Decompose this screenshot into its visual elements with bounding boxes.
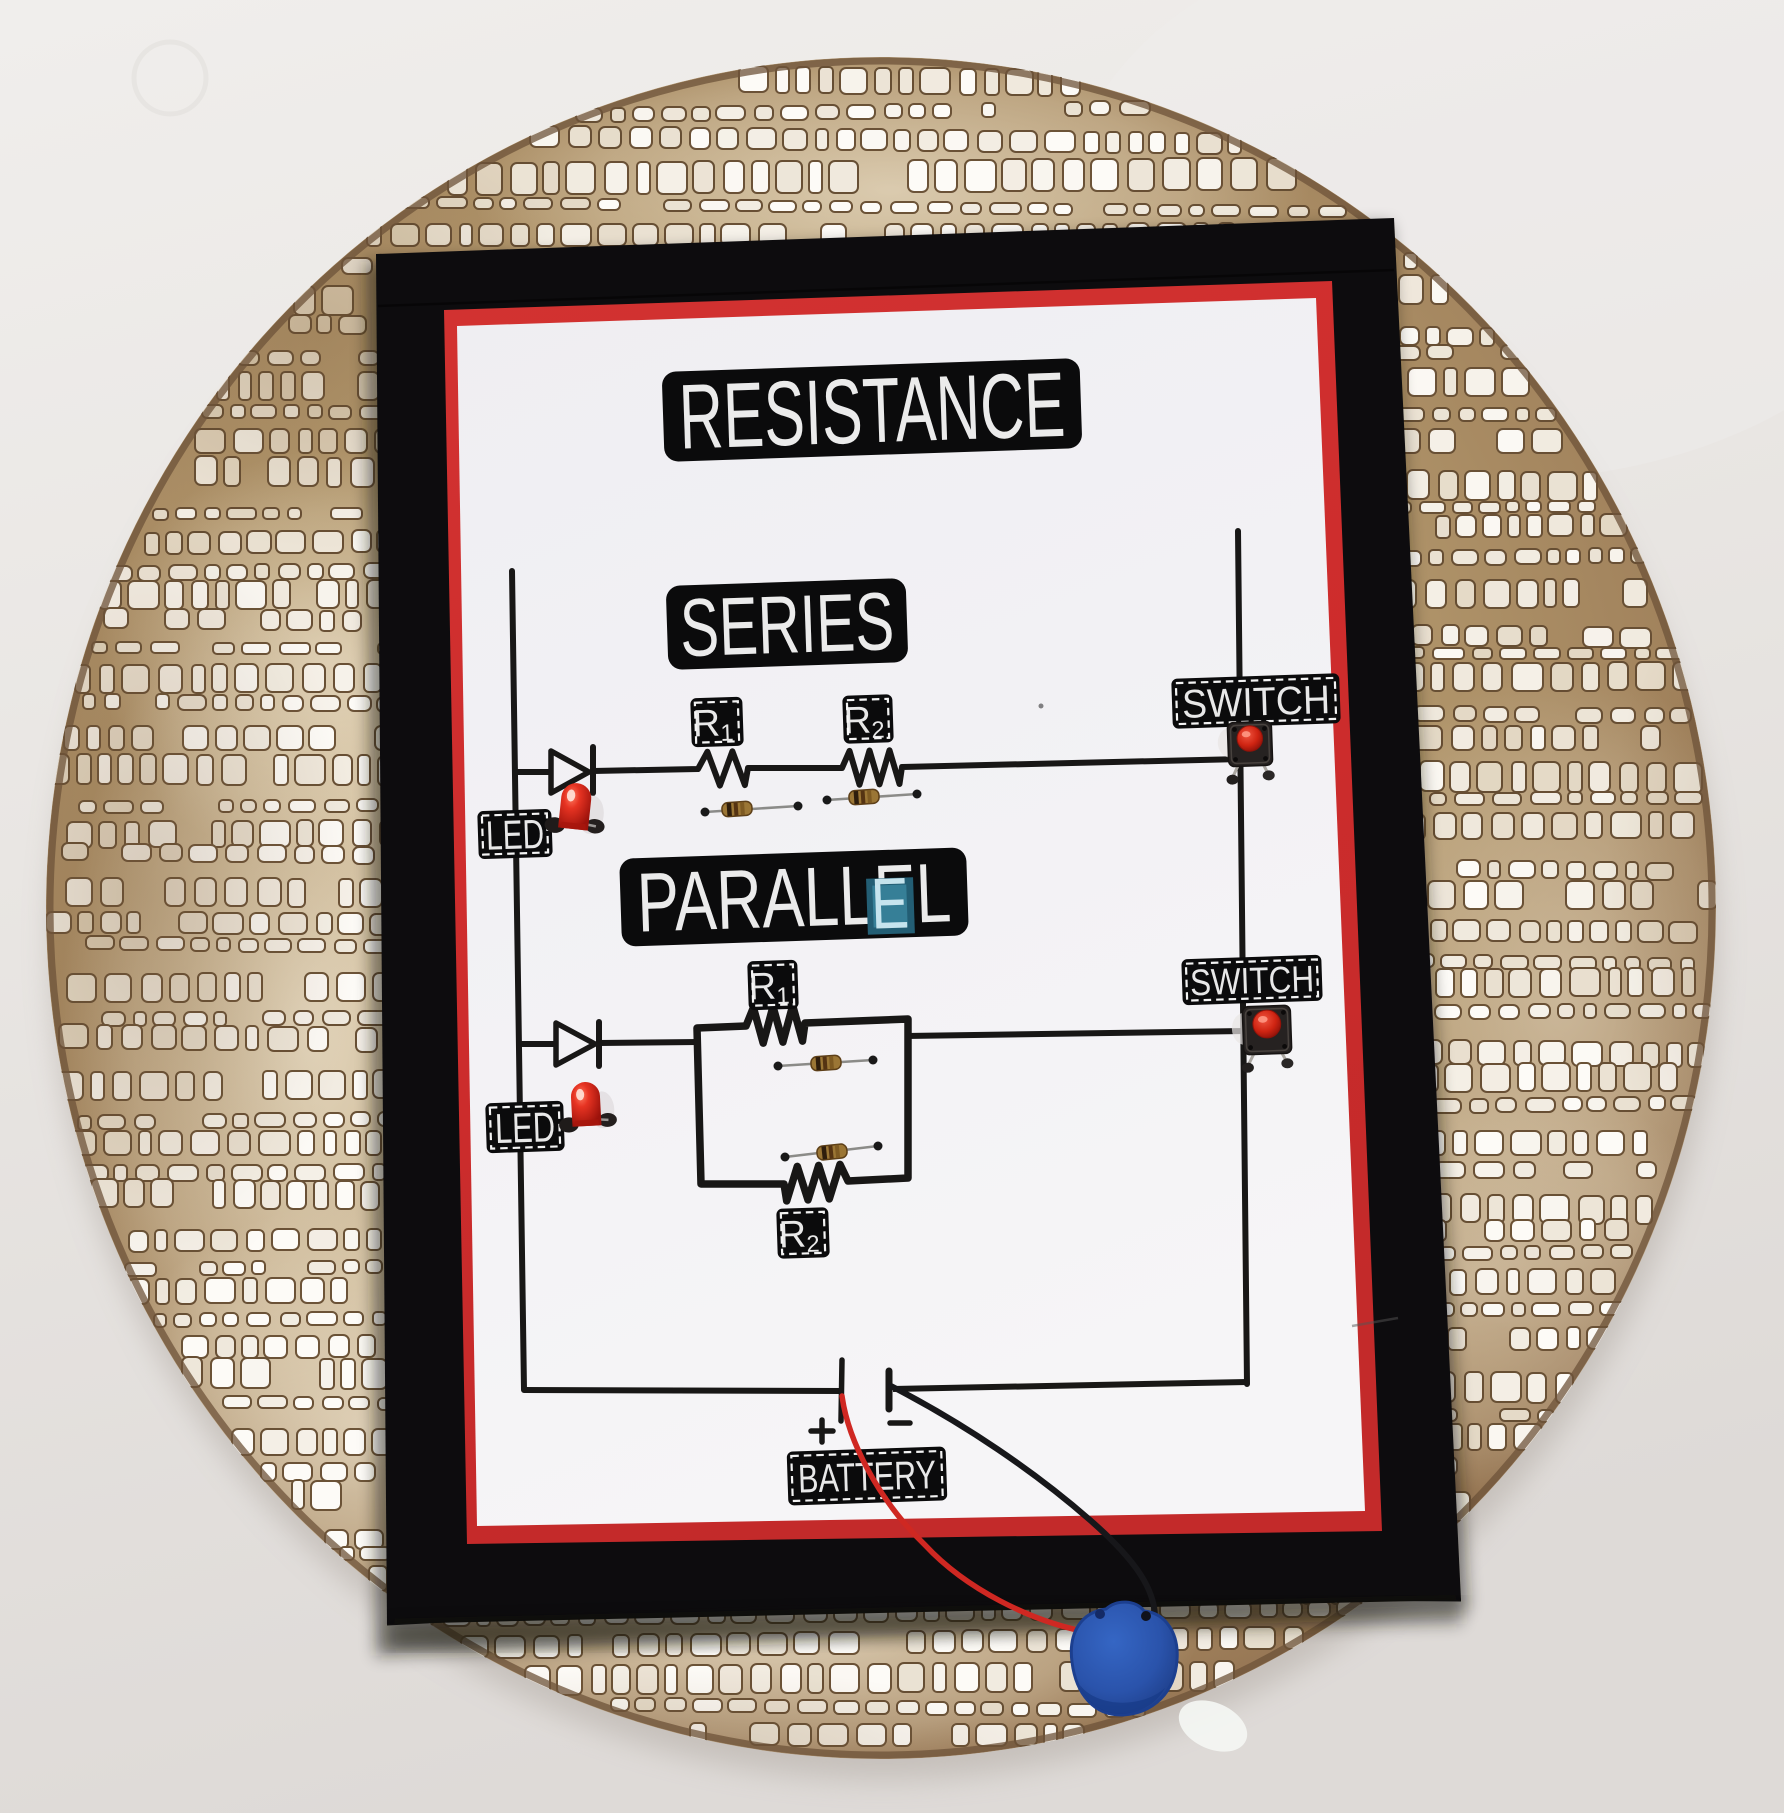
- svg-text:E: E: [870, 863, 911, 944]
- svg-text:SWITCH: SWITCH: [1181, 678, 1330, 727]
- svg-text:LED: LED: [485, 811, 544, 859]
- svg-text:LED: LED: [494, 1103, 556, 1152]
- svg-text:SERIES: SERIES: [679, 576, 896, 674]
- svg-text:SWITCH: SWITCH: [1189, 958, 1314, 1003]
- svg-text:RESISTANCE: RESISTANCE: [677, 354, 1066, 469]
- svg-text:BATTERY: BATTERY: [797, 1453, 936, 1502]
